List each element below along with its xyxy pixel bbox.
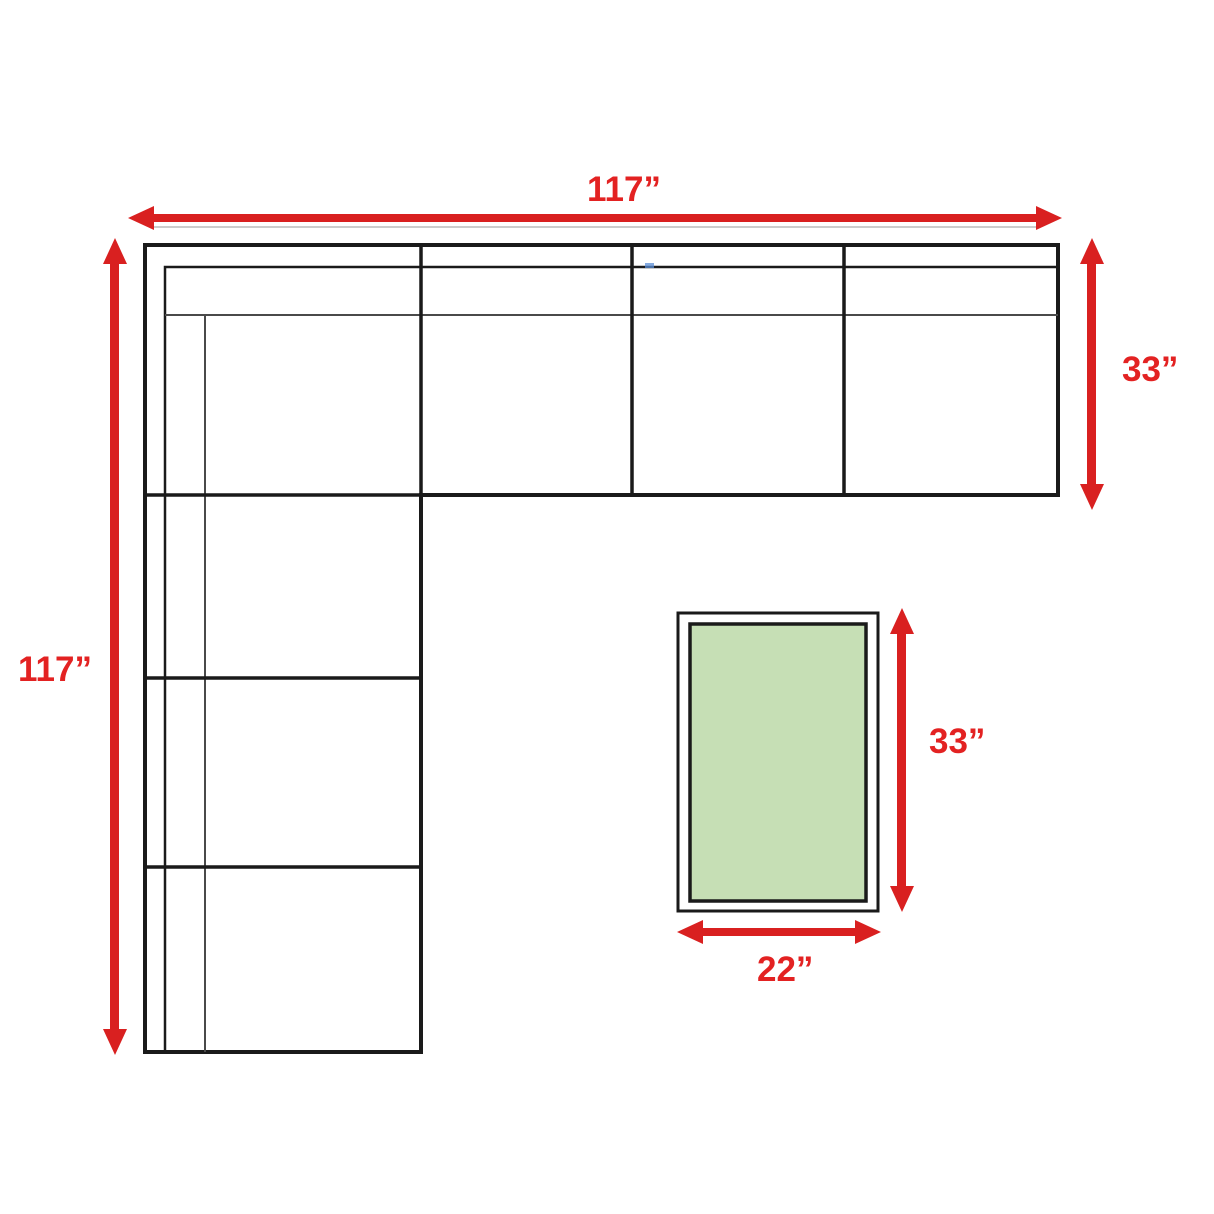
arrowhead-up-icon — [103, 238, 127, 264]
sofa-depth-dimension-label: 33” — [1122, 352, 1178, 387]
sofa-outer-boundary — [145, 245, 1058, 1052]
ottoman-length-dimension-arrow — [890, 608, 914, 912]
top-arrow-shadow-line — [152, 226, 1038, 228]
arrowhead-down-icon — [1080, 484, 1104, 510]
sofa-depth-dimension-arrow — [1080, 238, 1104, 510]
arrowhead-down-icon — [103, 1029, 127, 1055]
arrowhead-left-icon — [128, 206, 154, 230]
arrowhead-left-icon — [677, 920, 703, 944]
blue-mark-artifact — [645, 263, 654, 268]
arrowhead-up-icon — [890, 608, 914, 634]
arrowhead-right-icon — [1036, 206, 1062, 230]
sectional-sofa-outline — [145, 245, 1058, 1052]
sofa-inner-back-line — [165, 267, 1058, 1052]
arrowhead-up-icon — [1080, 238, 1104, 264]
arrowhead-right-icon — [855, 920, 881, 944]
diagram-canvas: 117” 117” 33” 33” 22” — [0, 0, 1214, 1214]
sofa-length-dimension-label: 117” — [18, 652, 92, 687]
sofa-length-dimension-arrow — [103, 238, 127, 1055]
sofa-width-dimension-label: 117” — [587, 172, 661, 207]
ottoman — [678, 613, 878, 911]
ottoman-length-dimension-label: 33” — [929, 724, 985, 759]
arrowhead-down-icon — [890, 886, 914, 912]
ottoman-inner-rect — [690, 624, 866, 901]
ottoman-width-dimension-arrow — [677, 920, 881, 944]
ottoman-width-dimension-label: 22” — [757, 952, 813, 987]
